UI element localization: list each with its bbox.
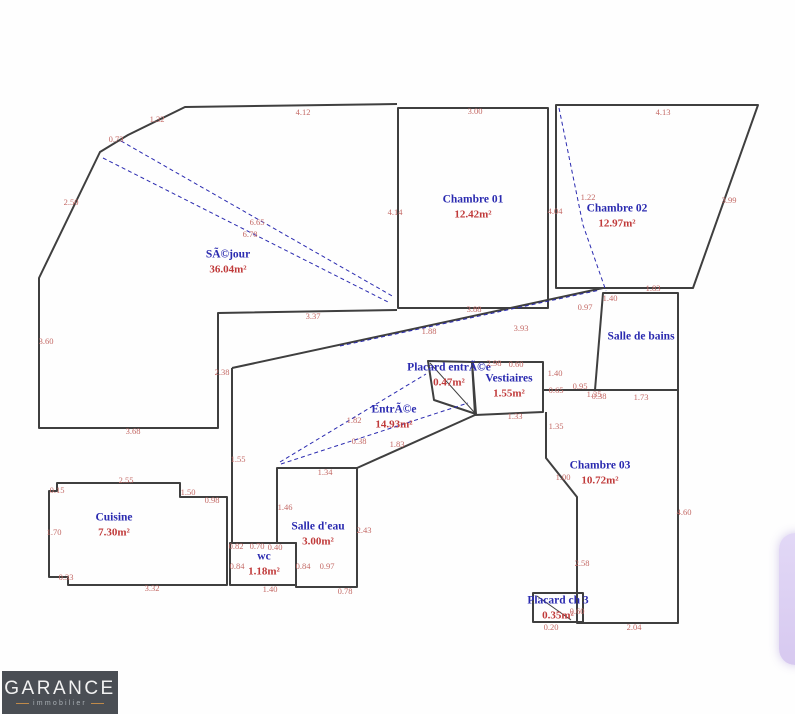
room-label-salle-de-bains: Salle de bains — [607, 330, 674, 345]
room-area: 14.93m² — [371, 417, 416, 431]
dim-label: 6.78 — [243, 229, 258, 239]
dim-label: 0.98 — [205, 495, 220, 505]
room-area: 10.72m² — [570, 473, 631, 487]
room-name: Chambre 02 — [587, 201, 648, 216]
room-area: 12.97m² — [587, 216, 648, 230]
room-label-cuisine: Cuisine 7.30m² — [95, 510, 132, 539]
dim-label: 1.35 — [587, 389, 602, 399]
dim-label: 0.40 — [268, 542, 283, 552]
dim-label: 4.13 — [656, 107, 671, 117]
side-widget[interactable] — [779, 533, 795, 665]
dim-label: 1.40 — [603, 293, 618, 303]
dim-label: 1.46 — [278, 502, 293, 512]
dim-label: 4.04 — [548, 206, 563, 216]
room-label-sejour: SÃ©jour 36.04m² — [206, 247, 250, 276]
room-label-placard-entree: Placard entrÃ©e 0.47m² — [407, 360, 491, 389]
dim-label: 0.60 — [509, 359, 524, 369]
room-name: Salle de bains — [607, 330, 674, 345]
room-label-vestiaires: Vestiaires 1.55m² — [485, 371, 532, 400]
dim-label: 1.35 — [549, 421, 564, 431]
dim-label: 1.55 — [231, 454, 246, 464]
room-area: 3.00m² — [291, 534, 344, 548]
room-name: Salle d'eau — [291, 519, 344, 534]
floorplan-drawing — [0, 0, 795, 714]
logo-tagline-text: immobilier — [33, 700, 87, 707]
dim-label: 0.65 — [549, 385, 564, 395]
logo-rule-right — [91, 703, 104, 704]
dim-label: 1.34 — [318, 467, 333, 477]
dim-label: 1.73 — [634, 392, 649, 402]
room-area: 12.42m² — [443, 207, 504, 221]
dim-label: 3.93 — [514, 323, 529, 333]
room-name: EntrÃ©e — [371, 402, 416, 417]
dim-label: 4.12 — [296, 107, 311, 117]
door-lines — [430, 363, 571, 620]
dim-label: 1.33 — [508, 411, 523, 421]
room-area: 1.55m² — [485, 386, 532, 400]
dim-label: 3.68 — [126, 426, 141, 436]
garance-logo: GARANCE immobilier — [2, 671, 118, 714]
dim-label: 0.20 — [544, 622, 559, 632]
room-label-wc: wc 1.18m² — [248, 549, 280, 578]
dim-label: 2.38 — [215, 367, 230, 377]
room-name: Chambre 03 — [570, 458, 631, 473]
dim-label: 4.60 — [677, 507, 692, 517]
dim-label: 1.70 — [47, 527, 62, 537]
dim-label: 0.38 — [352, 436, 367, 446]
logo-tagline: immobilier — [16, 700, 104, 707]
room-label-entree: EntrÃ©e 14.93m² — [371, 402, 416, 431]
room-area: 7.30m² — [95, 525, 132, 539]
room-name: Chambre 01 — [443, 192, 504, 207]
dim-label: 0.33 — [59, 572, 74, 582]
dim-label: 0.15 — [50, 485, 65, 495]
dim-label: 0.82 — [229, 541, 244, 551]
dim-label: 0.70 — [250, 541, 265, 551]
dashed-sight-lines — [103, 108, 606, 464]
dim-label: 0.60 — [570, 606, 585, 616]
room-area: 0.47m² — [407, 375, 491, 389]
room-label-chambre01: Chambre 01 12.42m² — [443, 192, 504, 221]
dim-label: 1.88 — [422, 326, 437, 336]
dim-label: 1.83 — [390, 439, 405, 449]
dim-label: 2.43 — [357, 525, 372, 535]
dim-label: 6.65 — [250, 217, 265, 227]
room-label-chambre03: Chambre 03 10.72m² — [570, 458, 631, 487]
wall-lines — [39, 104, 758, 623]
dim-label: 0.84 — [296, 561, 311, 571]
dim-label: 2.98 — [487, 358, 502, 368]
dim-label: 0.95 — [573, 381, 588, 391]
dim-label: 3.60 — [39, 336, 54, 346]
dim-label: 4.14 — [388, 207, 403, 217]
logo-rule-left — [16, 703, 29, 704]
dim-label: 2.58 — [575, 558, 590, 568]
dim-label: 3.37 — [306, 311, 321, 321]
room-name: Vestiaires — [485, 371, 532, 386]
room-label-salle-deau: Salle d'eau 3.00m² — [291, 519, 344, 548]
dim-label: 0.78 — [338, 586, 353, 596]
dim-label: 2.55 — [119, 475, 134, 485]
dim-label: 1.50 — [181, 487, 196, 497]
dim-label: 0.73 — [109, 134, 124, 144]
dim-label: 0.97 — [320, 561, 335, 571]
dim-label: 3.00 — [468, 106, 483, 116]
room-name: Cuisine — [95, 510, 132, 525]
room-name: Placard entrÃ©e — [407, 360, 491, 375]
dim-label: 2.04 — [627, 622, 642, 632]
room-name: SÃ©jour — [206, 247, 250, 262]
floorplan-page: SÃ©jour 36.04m² Chambre 01 12.42m² Chamb… — [0, 0, 795, 714]
logo-brand-text: GARANCE — [4, 679, 115, 698]
dim-label: 0.97 — [578, 302, 593, 312]
dim-label: 1.40 — [263, 584, 278, 594]
dim-label: 1.82 — [347, 415, 362, 425]
dim-label: 0.84 — [230, 561, 245, 571]
dim-label: 3.88 — [467, 304, 482, 314]
dim-label: 3.99 — [722, 195, 737, 205]
room-area: 36.04m² — [206, 262, 250, 276]
room-area: 1.18m² — [248, 564, 280, 578]
room-label-chambre02: Chambre 02 12.97m² — [587, 201, 648, 230]
dim-label: 2.50 — [64, 197, 79, 207]
dim-label: 3.32 — [145, 583, 160, 593]
dim-label: 1.83 — [646, 283, 661, 293]
dim-label: 1.32 — [150, 114, 165, 124]
dim-label: 1.00 — [556, 472, 571, 482]
dim-label: 1.22 — [581, 192, 596, 202]
dim-label: 1.40 — [548, 368, 563, 378]
